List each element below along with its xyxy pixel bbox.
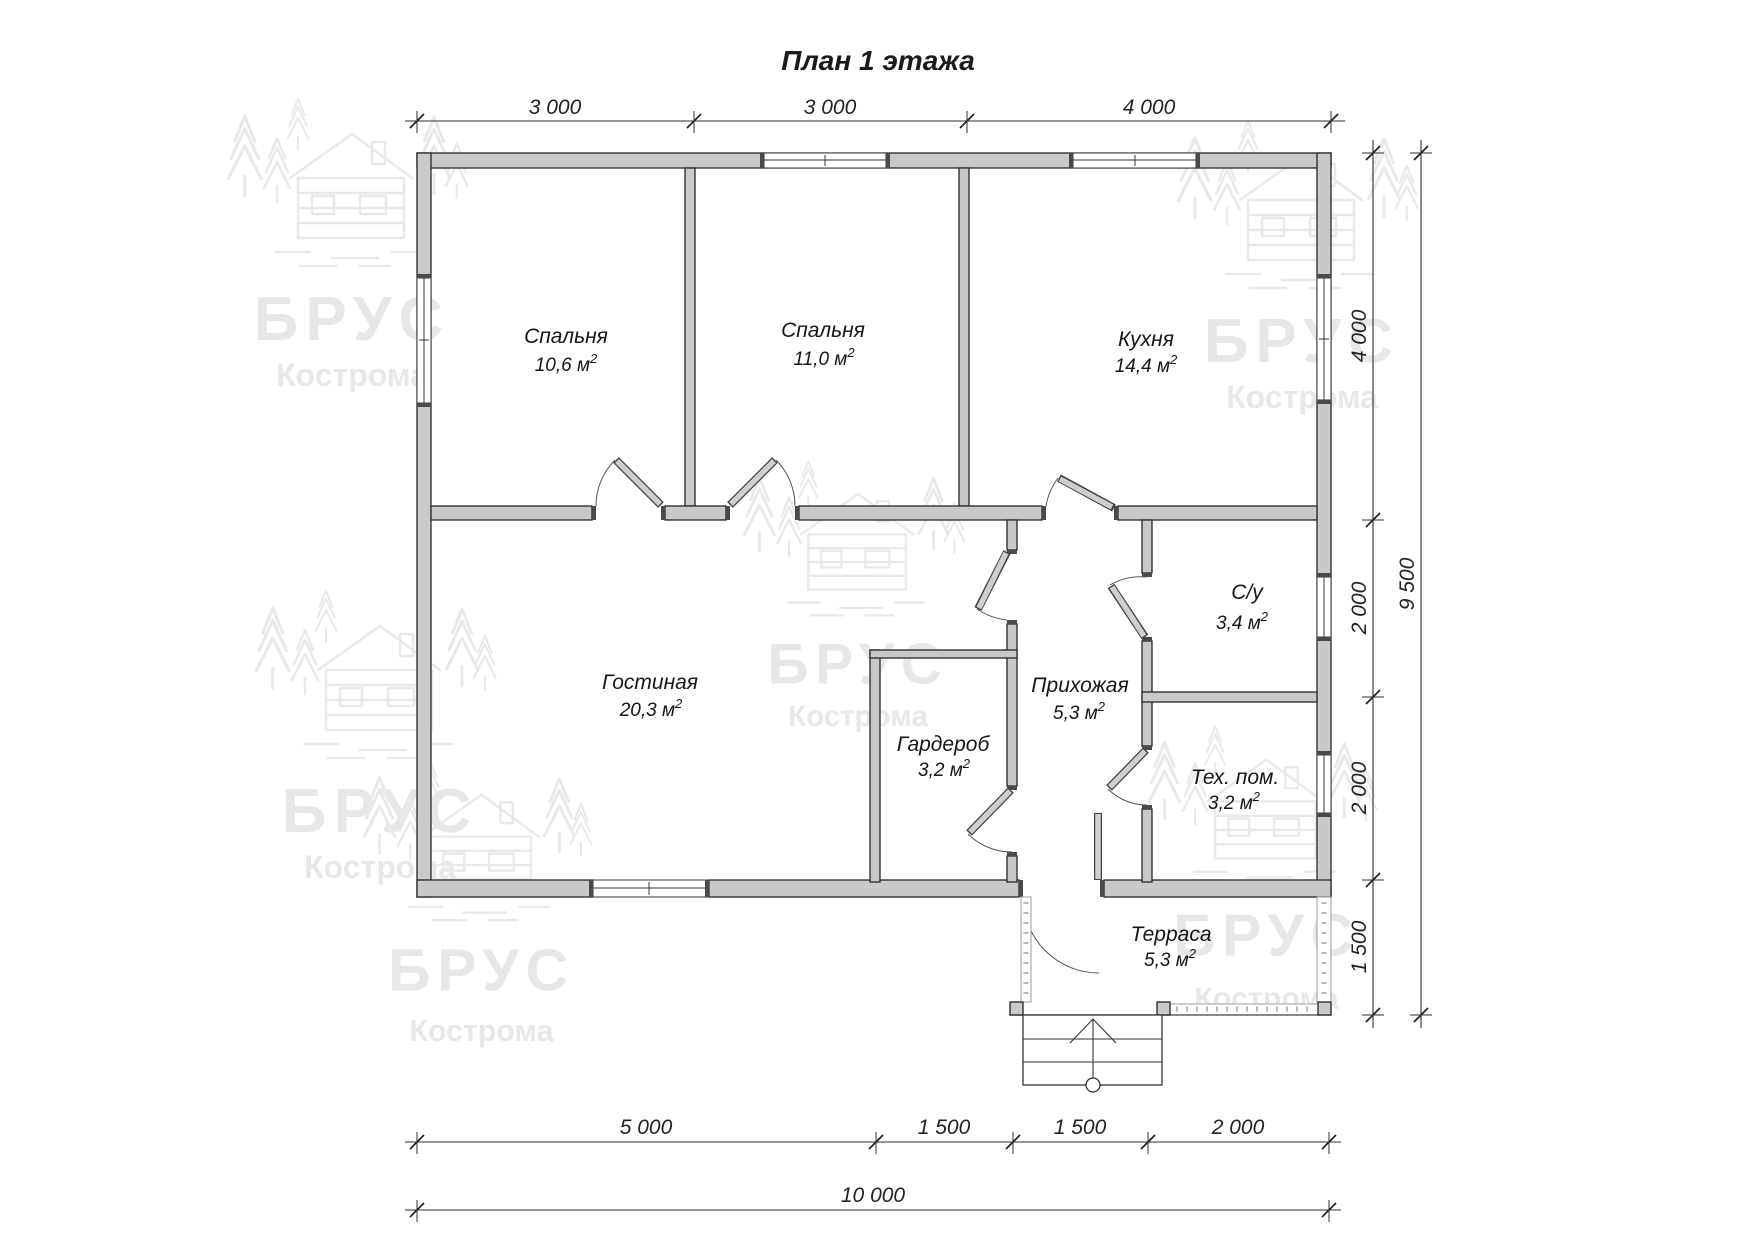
dim-right-total: 9 500 [1396,557,1419,610]
room-label-bedroom2: Спальня [781,319,865,342]
room-label-wardrobe: Гардероб [897,733,991,756]
watermark-graphic [1179,121,1418,288]
dimension-bottom: 5 000 1 500 1 500 2 000 10 000 [405,1116,1341,1222]
room-label-bathroom: С/у [1231,581,1264,604]
room-label-techroom: Тех. пом. [1191,766,1280,789]
room-area-bathroom: 3,4 м2 [1216,609,1269,634]
dim-bottom-total: 10 000 [841,1184,906,1207]
room-label-hallway: Прихожая [1031,674,1128,697]
watermarks: БРУС Кострома БРУС Кострома БРУС Костром… [229,99,1418,1048]
dim-right-1: 4 000 [1348,309,1371,362]
dim-bottom-2: 1 500 [918,1116,971,1139]
dim-bottom-4: 2 000 [1211,1116,1265,1139]
room-area-bedroom1: 10,6 м2 [535,351,598,376]
room-label-living: Гостиная [602,671,698,694]
watermark-city: Кострома [788,700,928,733]
dim-right-3: 2 000 [1348,761,1371,815]
room-label-terrace: Терраса [1130,923,1211,946]
room-area-kitchen: 14,4 м2 [1115,352,1178,377]
watermark-graphic [1149,726,1376,885]
watermark-graphic [229,99,468,266]
watermark-group: БРУС Кострома [229,99,468,393]
watermark-graphic [744,462,964,616]
dim-bottom-3: 1 500 [1054,1116,1107,1139]
watermark-city: Кострома [409,1014,554,1048]
dim-top-3: 4 000 [1123,96,1176,119]
room-label-kitchen: Кухня [1118,328,1174,351]
dim-top-2: 3 000 [804,96,857,119]
floor-plan-page: БРУС Кострома БРУС Кострома БРУС Костром… [0,0,1754,1240]
watermark-brand: БРУС [388,938,575,1003]
room-area-hallway: 5,3 м2 [1053,699,1106,724]
watermark-city: Кострома [1226,379,1378,415]
watermark-group: БРУС Кострома [257,591,496,885]
dim-bottom-1: 5 000 [620,1116,673,1139]
dim-right-4: 1 500 [1348,920,1371,973]
room-area-living: 20,3 м2 [619,696,683,721]
dimension-top: 3 000 3 000 4 000 [405,96,1345,133]
dim-right-2: 2 000 [1348,581,1371,635]
page-title: План 1 этажа [781,45,975,76]
watermark-group: БРУС Кострома [744,462,964,733]
room-area-bedroom2: 11,0 м2 [793,345,855,370]
room-area-wardrobe: 3,2 м2 [918,756,971,781]
watermark-brand: БРУС [768,632,949,696]
dim-top-1: 3 000 [529,96,582,119]
room-label-bedroom1: Спальня [524,325,608,348]
watermark-graphic [257,591,496,758]
entry-steps [1023,1015,1162,1092]
room-area-techroom: 3,2 м2 [1208,789,1261,814]
watermark-city: Кострома [276,357,428,393]
floor-plan-drawing: БРУС Кострома БРУС Кострома БРУС Костром… [0,0,1754,1240]
